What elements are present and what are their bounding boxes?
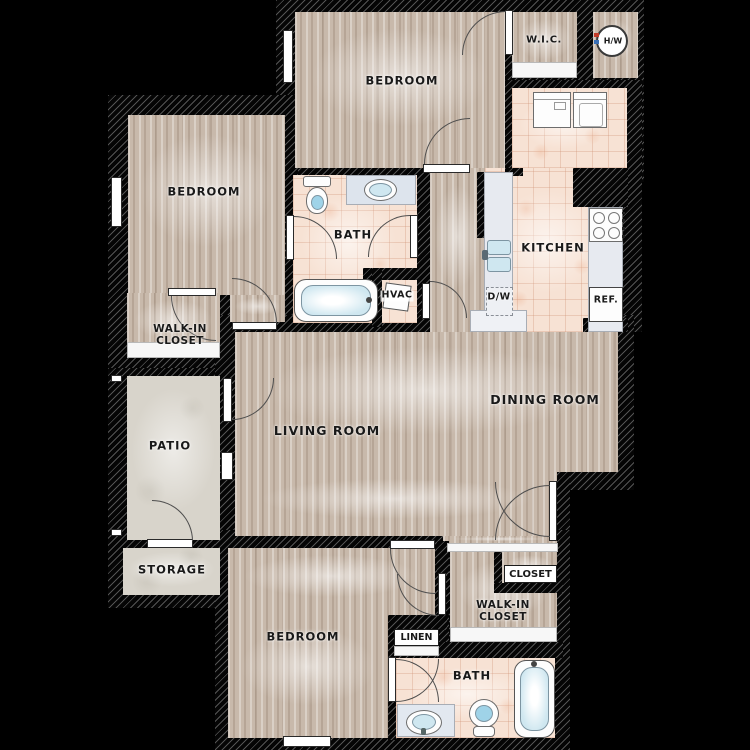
toilet-bottom-base	[473, 726, 495, 737]
dryer-panel-icon	[574, 99, 606, 100]
shelf-vestibule	[447, 543, 558, 552]
label-bath-bottom: BATH	[453, 669, 491, 682]
label-bedroom-top: BEDROOM	[365, 74, 438, 87]
door-bedroom-left	[232, 322, 277, 330]
label-kitchen: KITCHEN	[521, 241, 585, 254]
label-bath-top: BATH	[334, 228, 372, 241]
door-hvac	[422, 283, 430, 319]
label-storage: STORAGE	[138, 563, 206, 576]
label-closet: CLOSET	[504, 565, 557, 583]
washer-panel-icon	[534, 99, 570, 100]
patio-post-top	[111, 375, 122, 382]
patio-post-bottom	[111, 529, 122, 536]
dryer-door-icon	[579, 103, 603, 127]
door-bedroom-bottom	[390, 540, 435, 549]
wall-kitchen-top-right	[573, 168, 628, 207]
burner-icon	[593, 227, 605, 239]
bathtub-bottom-basin	[520, 667, 549, 731]
label-walkin-bottom: WALK-IN CLOSET	[476, 599, 530, 623]
floor-plan: BEDROOM W.I.C. H/W KITCHEN D/W REF. BATH…	[0, 0, 750, 750]
label-dishwasher: D/W	[487, 293, 510, 304]
label-living-room: LIVING ROOM	[274, 424, 380, 438]
bathtub-top-basin	[301, 285, 371, 316]
label-bedroom-left: BEDROOM	[167, 185, 240, 198]
bathtub-bottom-faucet-icon	[531, 661, 537, 667]
toilet-top-water	[311, 195, 324, 210]
kitchen-sink-basin-2	[487, 257, 511, 272]
burner-icon	[608, 227, 620, 239]
burner-icon	[593, 212, 605, 224]
shelf-linen	[394, 646, 439, 656]
door-walkin-bottom	[438, 573, 446, 615]
washer	[533, 92, 571, 128]
room-bedroom-left	[128, 115, 285, 295]
door-bath-bottom	[388, 657, 396, 702]
toilet-top-tank	[303, 176, 331, 187]
kitchen-sink-basin-1	[487, 240, 511, 255]
door-wic-top	[505, 10, 513, 55]
water-heater-cold-dot	[594, 40, 599, 44]
window-bedroom-top	[283, 30, 293, 83]
label-water-heater: H/W	[604, 36, 622, 45]
bathtub-top-faucet-icon	[366, 297, 372, 303]
water-heater-hot-dot	[594, 33, 599, 37]
shelf-wic-top	[512, 62, 577, 78]
window-bedroom-bottom	[283, 736, 331, 747]
label-wic-top: W.I.C.	[526, 34, 562, 46]
label-linen-text: LINEN	[401, 632, 433, 643]
washer-dispenser-icon	[554, 102, 566, 110]
door-walkin-left	[168, 288, 216, 296]
door-bath-top-right	[410, 215, 418, 258]
stove	[589, 208, 623, 242]
window-patio	[221, 452, 233, 480]
label-linen: LINEN	[394, 629, 439, 646]
wall-nook-bottom	[494, 583, 563, 593]
label-patio: PATIO	[149, 439, 191, 452]
stove-knobs-icon	[622, 212, 625, 238]
shelf-walkin-bottom	[450, 627, 557, 642]
door-bath-top-left	[286, 215, 294, 260]
bath-top-sink-bowl	[369, 183, 392, 197]
wall-linen-top	[388, 615, 447, 630]
wall-bath-bottom-top	[437, 642, 563, 658]
door-patio	[223, 378, 232, 422]
label-walkin-left: WALK-IN CLOSET	[153, 323, 207, 347]
dryer	[573, 92, 607, 128]
label-hvac: HVAC	[381, 291, 414, 302]
door-entry	[549, 481, 557, 541]
toilet-bottom-water	[475, 705, 493, 722]
window-bedroom-left	[111, 177, 122, 227]
label-bedroom-bottom: BEDROOM	[266, 630, 339, 643]
kitchen-faucet-icon	[482, 250, 488, 260]
bath-bottom-faucet-icon	[421, 728, 426, 735]
door-bedroom-top	[423, 164, 470, 173]
burner-icon	[608, 212, 620, 224]
label-dining-room: DINING ROOM	[490, 393, 600, 407]
label-closet-text: CLOSET	[509, 569, 552, 580]
label-refrigerator: REF.	[594, 296, 619, 307]
